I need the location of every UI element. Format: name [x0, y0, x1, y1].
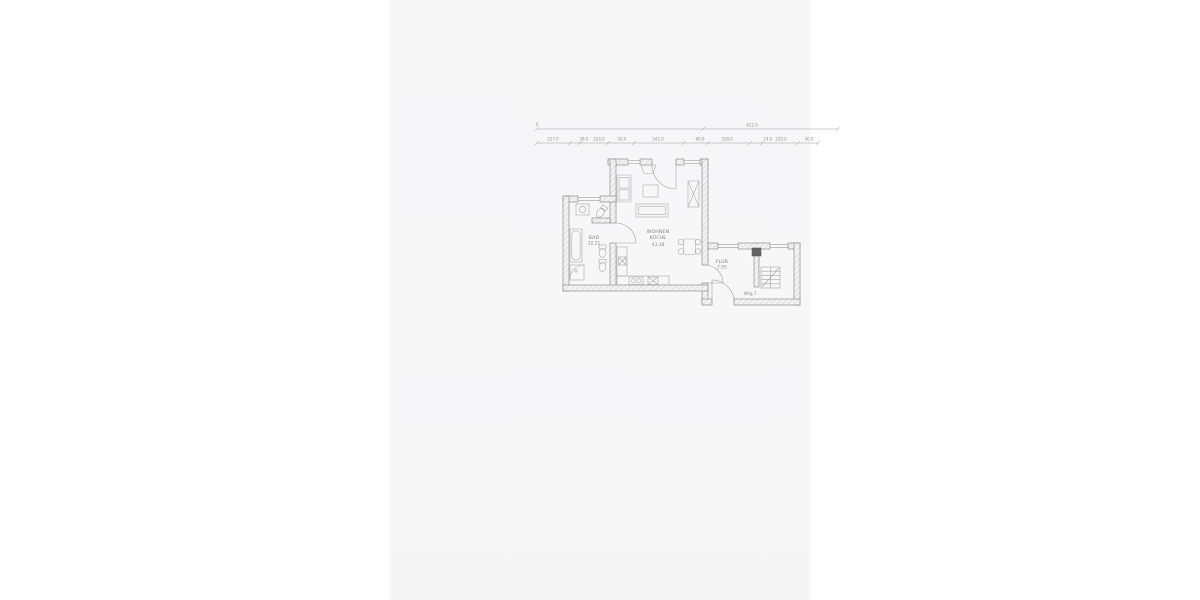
page-background: 0 812.0 227.0 38.0 224.0 50.0 542.0 60.0… [0, 0, 1200, 600]
dim-seg-0: 227.0 [547, 137, 559, 142]
shower-icon [570, 265, 584, 280]
door-swing-icon [652, 165, 676, 189]
shaft-block [752, 248, 761, 256]
sink-icon [629, 277, 643, 285]
window-icon [684, 159, 700, 165]
dim-overall: 812.0 [746, 123, 758, 128]
window-icon [578, 196, 600, 202]
window-icon [628, 159, 640, 165]
dimension-labels: 0 812.0 227.0 38.0 224.0 50.0 542.0 60.0… [536, 122, 814, 142]
dim-seg-7: 24.0 [764, 137, 773, 142]
wc-icon [595, 204, 608, 218]
wardrobe-icon [688, 181, 699, 207]
washbasin-icon [576, 204, 589, 215]
bidet-icon [599, 260, 606, 272]
dim-seg-3: 50.0 [618, 137, 627, 142]
dim-seg-8: 220.0 [775, 137, 787, 142]
room-label-flur: FLUR [716, 259, 729, 265]
toilet-icon [599, 245, 606, 257]
sideboard-icon [636, 204, 668, 217]
room-area-bad: 12,21 [588, 241, 601, 247]
sofa-icon [617, 175, 631, 202]
dimension-lines: 0 812.0 227.0 38.0 224.0 50.0 542.0 60.0… [535, 122, 840, 145]
door-swing-icon [616, 223, 636, 243]
bathtub-icon [570, 229, 582, 262]
walls [563, 159, 800, 305]
stairs-icon [761, 267, 780, 288]
tiled-stove-icon [641, 165, 656, 174]
room-label-wohnen: WOHNEN [647, 229, 670, 235]
dim-origin: 0 [536, 122, 539, 127]
room-area-flur: 7,95 [717, 265, 727, 271]
doors [616, 165, 734, 302]
oven-icon [619, 257, 627, 265]
floor-plan-drawing: 0 812.0 227.0 38.0 224.0 50.0 542.0 60.0… [0, 0, 1200, 600]
dim-seg-1: 38.0 [580, 137, 589, 142]
dim-seg-4: 542.0 [652, 137, 664, 142]
room-label-bad: BAD [589, 235, 600, 241]
dim-seg-9: 40.0 [805, 137, 814, 142]
dim-seg-6: 328.0 [721, 137, 733, 142]
dim-seg-2: 224.0 [593, 137, 605, 142]
room-label-kueche: KÜCHE [650, 234, 667, 241]
stove-icon [648, 277, 658, 285]
dim-seg-5: 60.0 [696, 137, 705, 142]
kitchen-fixtures [617, 247, 669, 285]
dining-set-icon [678, 239, 701, 255]
window-icon [770, 243, 788, 249]
window-icon [718, 243, 738, 249]
windows [578, 159, 788, 249]
coffee-table-icon [643, 185, 658, 197]
apartment-number-label: Whg.7 [744, 291, 757, 296]
room-area-wohnen-kueche: 43,38 [652, 242, 665, 248]
living-furniture [617, 165, 701, 255]
